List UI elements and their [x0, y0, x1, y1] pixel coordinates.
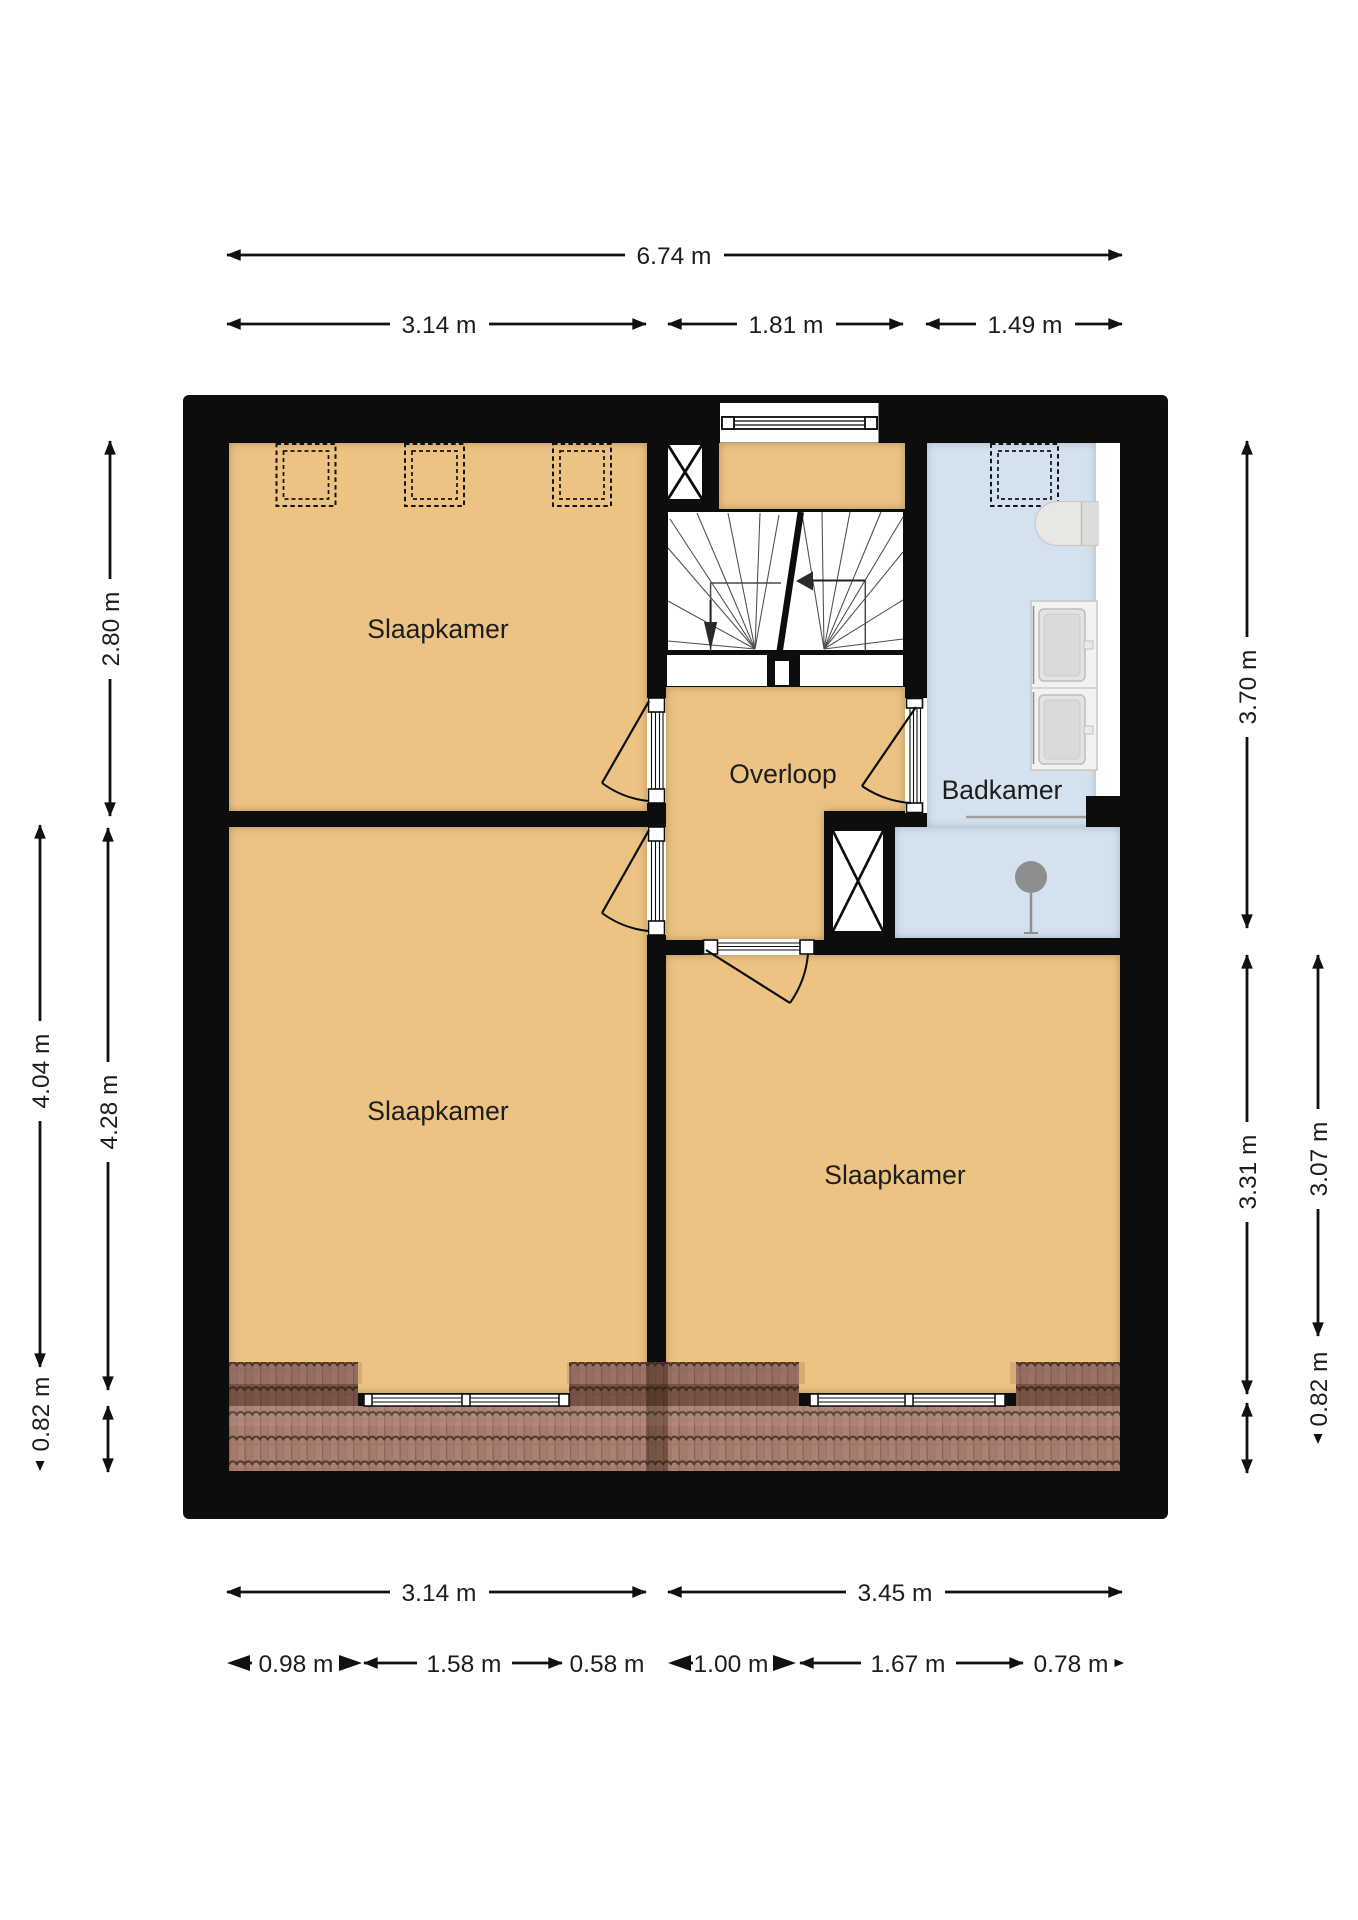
svg-text:4.28 m: 4.28 m — [96, 1075, 123, 1150]
svg-text:2.80 m: 2.80 m — [98, 592, 125, 667]
svg-text:0.98 m: 0.98 m — [259, 1651, 334, 1678]
svg-text:3.14 m: 3.14 m — [402, 312, 477, 339]
svg-text:Slaapkamer: Slaapkamer — [367, 1096, 509, 1126]
svg-text:3.07 m: 3.07 m — [1306, 1122, 1333, 1197]
svg-text:Slaapkamer: Slaapkamer — [367, 614, 509, 644]
svg-text:1.67 m: 1.67 m — [871, 1651, 946, 1678]
svg-text:3.45 m: 3.45 m — [858, 1580, 933, 1607]
svg-text:3.70 m: 3.70 m — [1235, 650, 1262, 725]
svg-text:0.82 m: 0.82 m — [1306, 1352, 1333, 1427]
svg-text:6.74 m: 6.74 m — [637, 243, 712, 270]
svg-text:4.04 m: 4.04 m — [28, 1034, 55, 1109]
svg-text:1.58 m: 1.58 m — [427, 1651, 502, 1678]
svg-text:0.82 m: 0.82 m — [28, 1377, 55, 1452]
svg-text:0.58 m: 0.58 m — [570, 1651, 645, 1678]
svg-text:1.00 m: 1.00 m — [694, 1651, 769, 1678]
svg-text:Overloop: Overloop — [729, 759, 837, 789]
svg-text:Badkamer: Badkamer — [942, 775, 1063, 805]
svg-text:0.78 m: 0.78 m — [1034, 1651, 1109, 1678]
svg-text:1.49 m: 1.49 m — [988, 312, 1063, 339]
svg-text:3.14 m: 3.14 m — [402, 1580, 477, 1607]
svg-text:3.31 m: 3.31 m — [1235, 1135, 1262, 1210]
svg-text:Slaapkamer: Slaapkamer — [824, 1160, 966, 1190]
svg-text:1.81 m: 1.81 m — [749, 312, 824, 339]
